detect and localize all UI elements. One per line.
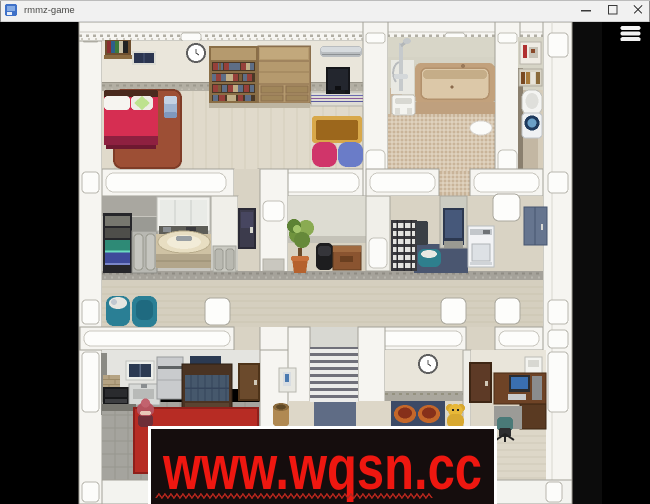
svg-text:rmmz-game: rmmz-game: [24, 5, 75, 16]
svg-text:www.wqsn.cc: www.wqsn.cc: [162, 434, 482, 503]
